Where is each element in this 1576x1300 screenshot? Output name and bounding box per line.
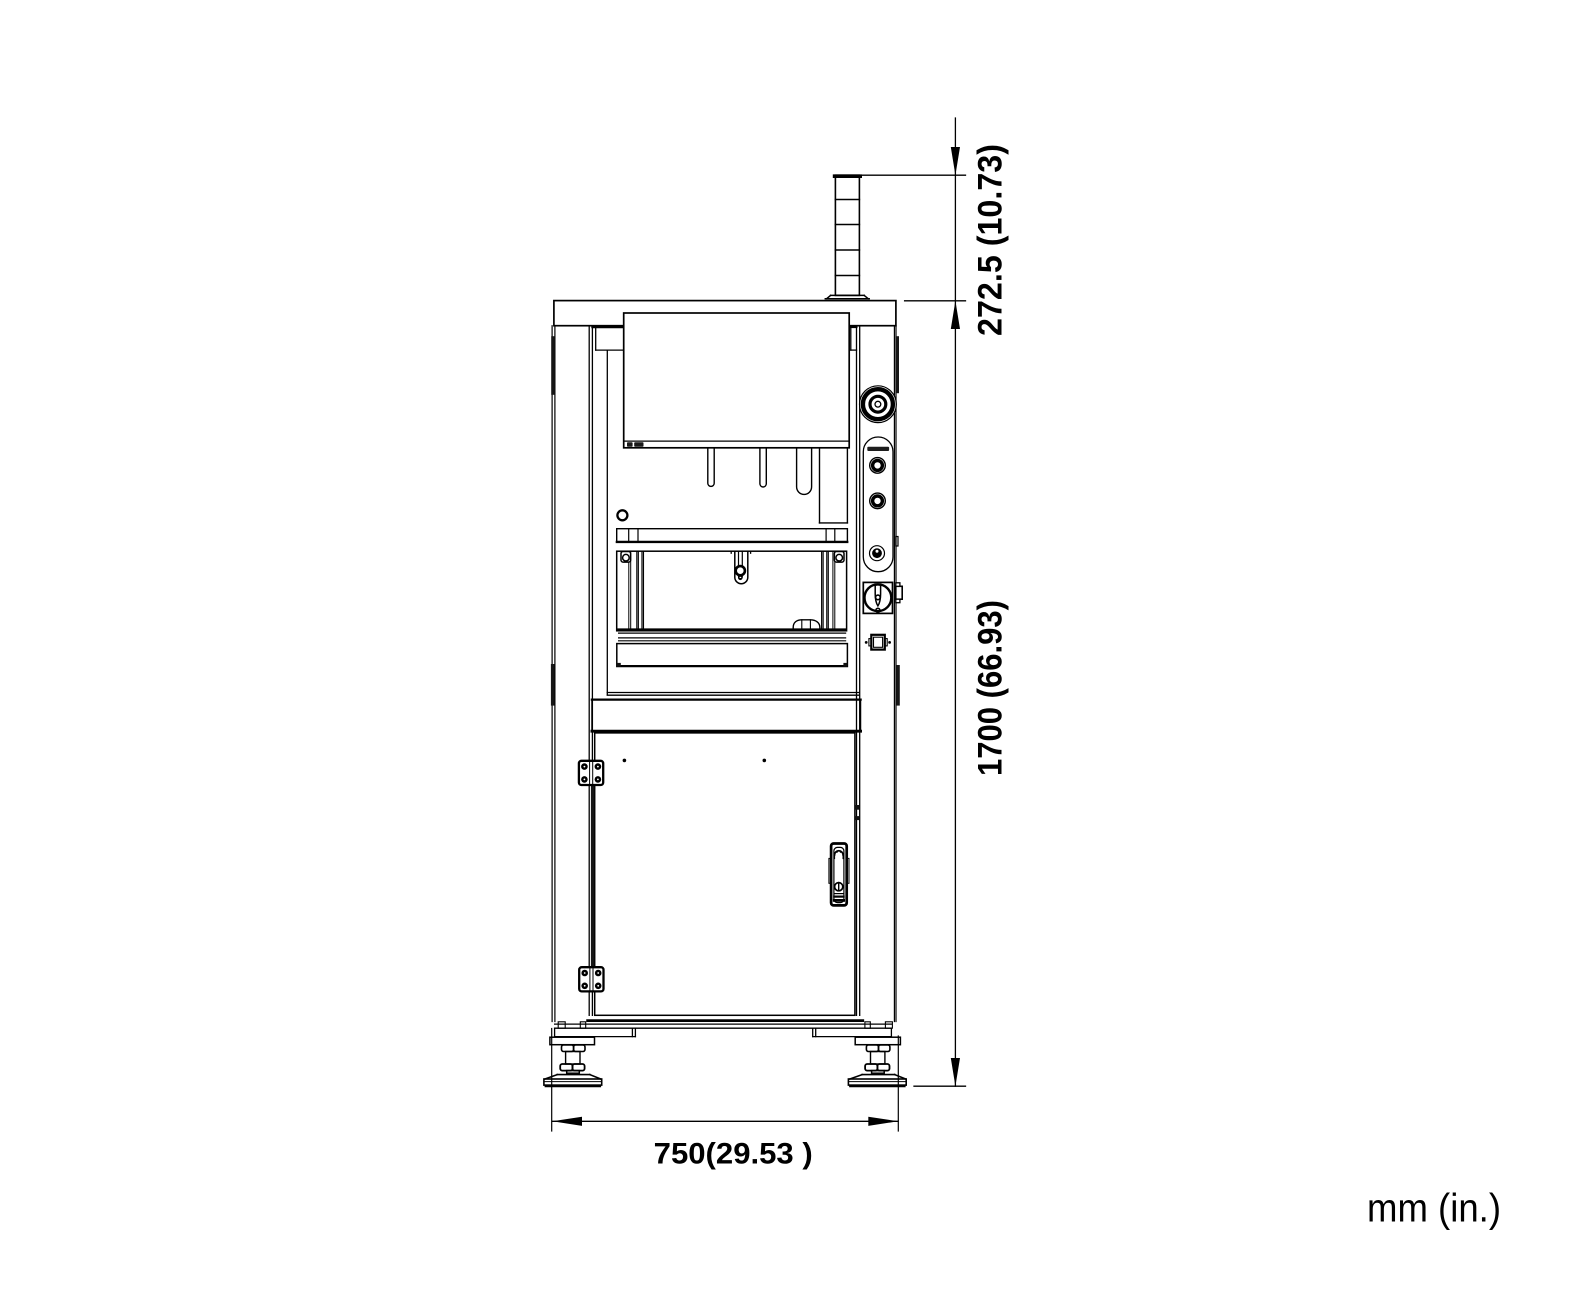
svg-text:mm (in.): mm (in.) <box>1367 1187 1501 1231</box>
svg-text:272.5 (10.73): 272.5 (10.73) <box>972 144 1010 336</box>
svg-text:1700 (66.93): 1700 (66.93) <box>972 600 1010 776</box>
svg-text:750(29.53 ): 750(29.53 ) <box>654 1138 813 1171</box>
